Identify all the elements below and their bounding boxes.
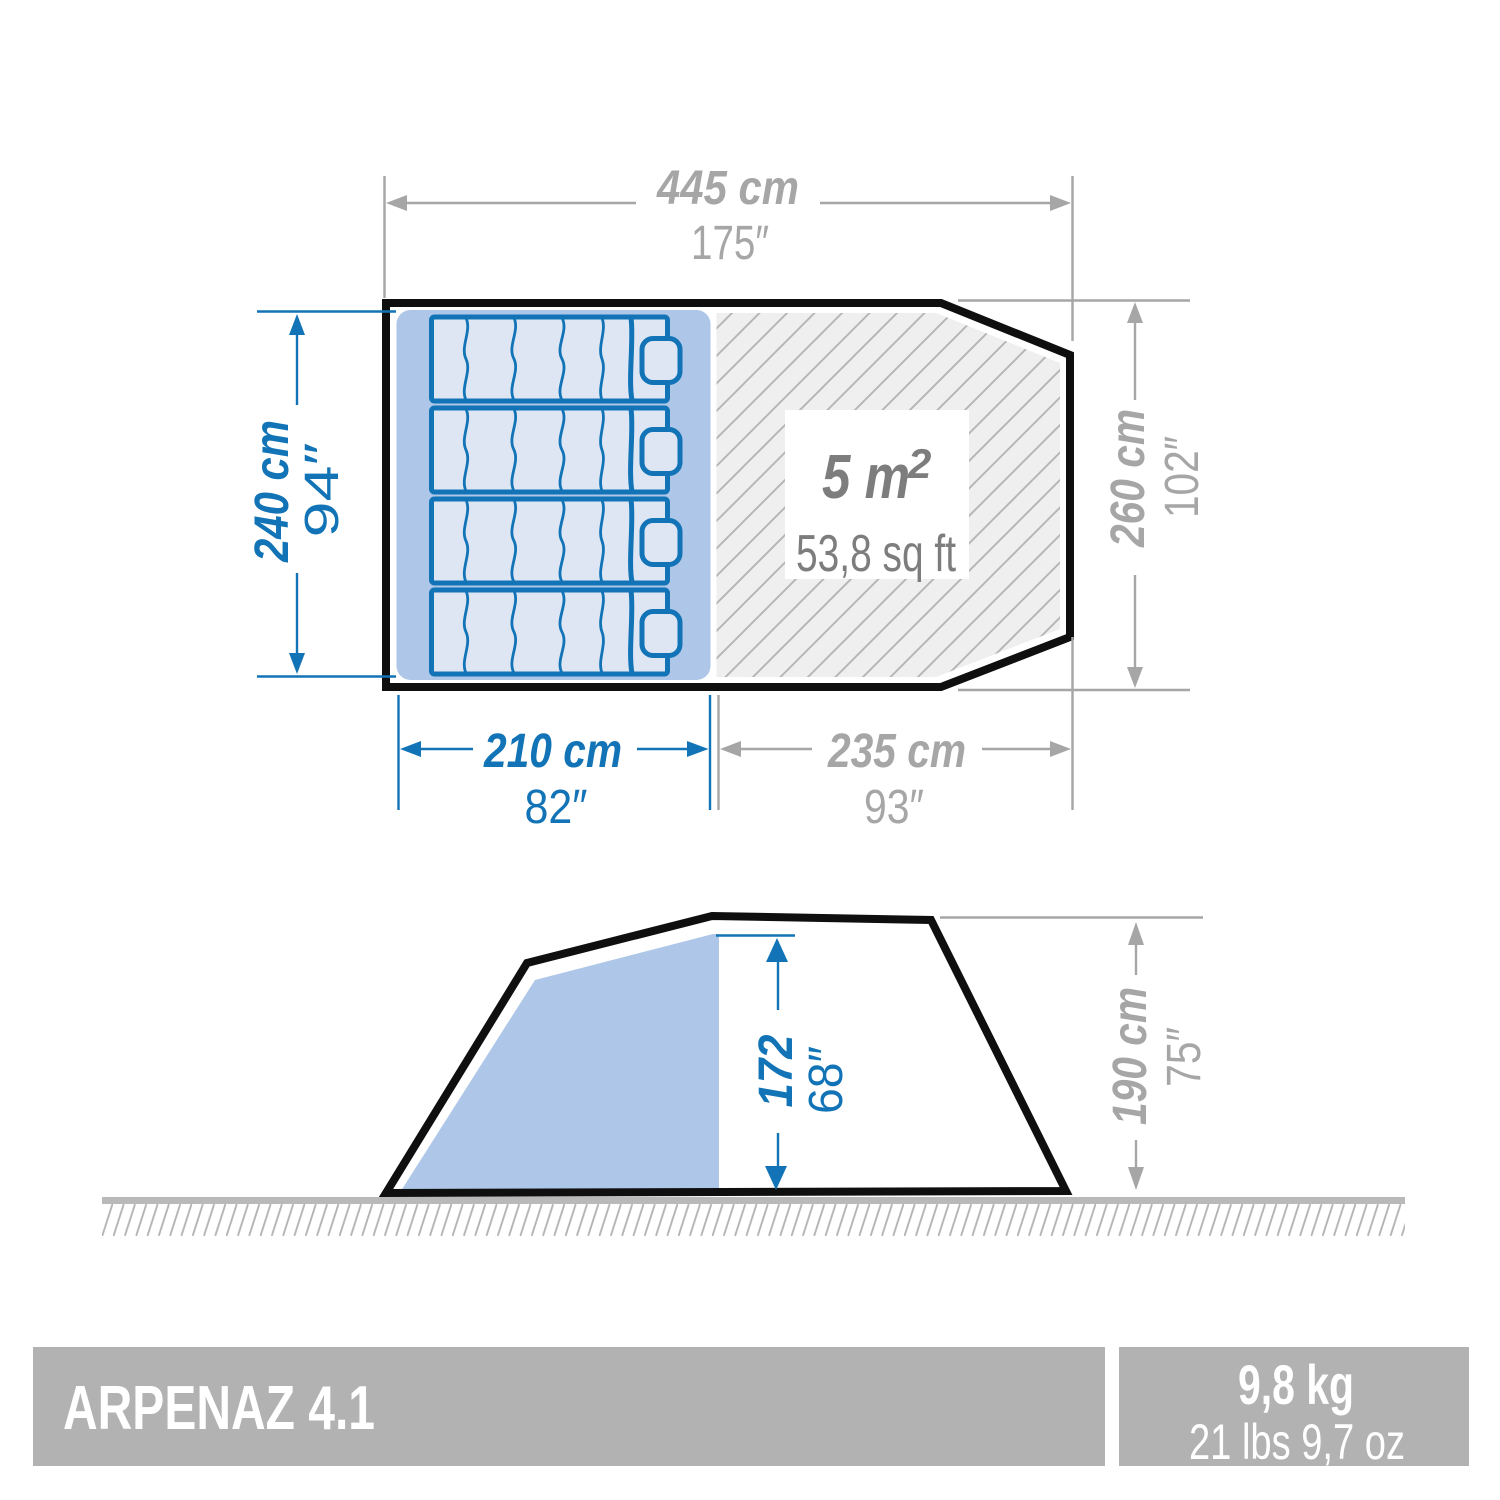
svg-text:190 cm: 190 cm (1104, 987, 1157, 1125)
svg-text:68″: 68″ (800, 1046, 853, 1114)
svg-text:235 cm: 235 cm (827, 725, 966, 778)
svg-text:5 m: 5 m (822, 443, 910, 512)
svg-text:94″: 94″ (296, 443, 349, 538)
svg-text:53,8 sq ft: 53,8 sq ft (796, 525, 956, 583)
svg-text:102″: 102″ (1156, 436, 1209, 518)
svg-text:2: 2 (907, 440, 931, 487)
svg-text:240 cm: 240 cm (246, 420, 299, 563)
svg-text:82″: 82″ (525, 781, 588, 834)
svg-text:93″: 93″ (864, 781, 924, 834)
svg-text:9,8 kg: 9,8 kg (1238, 1353, 1354, 1416)
svg-text:445 cm: 445 cm (656, 162, 799, 215)
svg-text:ARPENAZ 4.1: ARPENAZ 4.1 (63, 1374, 375, 1443)
svg-text:175″: 175″ (691, 217, 769, 270)
svg-text:75″: 75″ (1158, 1027, 1211, 1087)
svg-text:21 lbs 9,7 oz: 21 lbs 9,7 oz (1189, 1414, 1405, 1470)
svg-text:172: 172 (750, 1034, 803, 1107)
svg-text:260 cm: 260 cm (1102, 409, 1155, 548)
svg-text:210 cm: 210 cm (483, 725, 622, 778)
